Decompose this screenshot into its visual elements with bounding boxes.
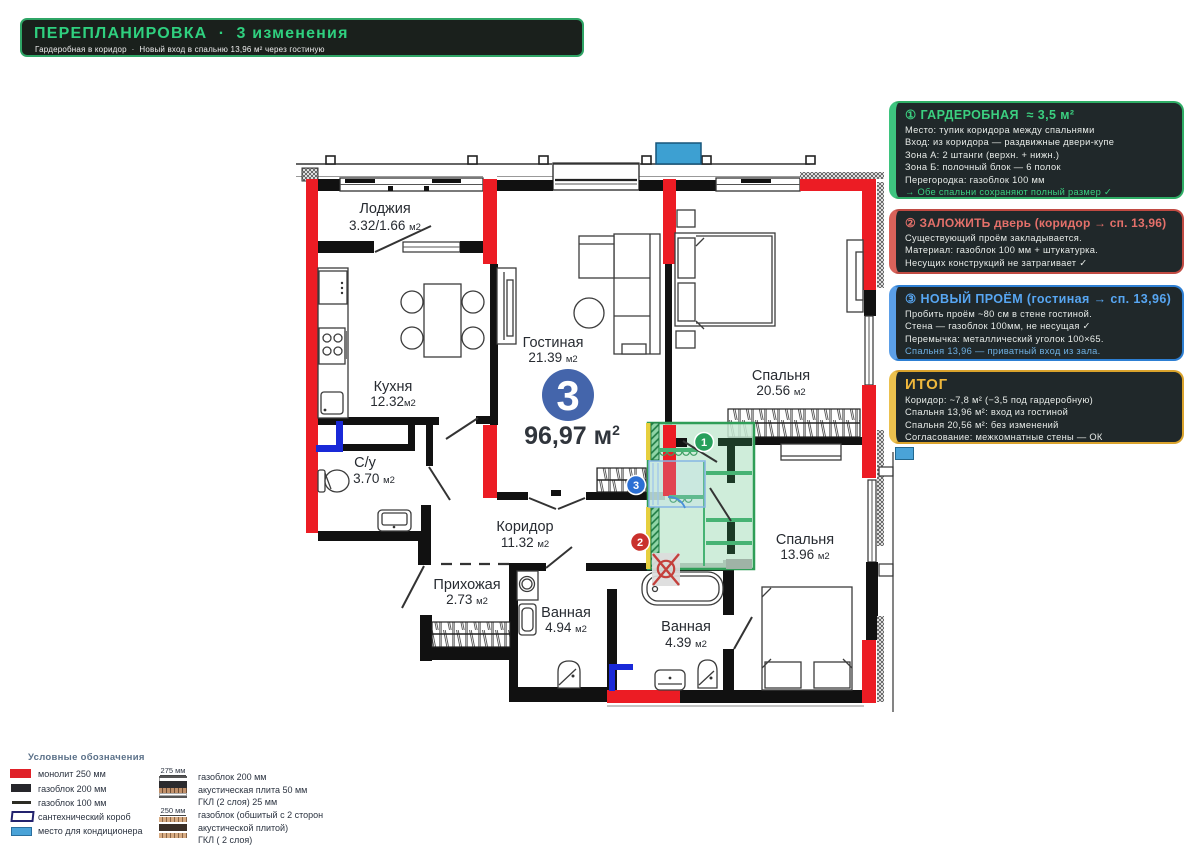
- svg-text:Прихожая: Прихожая: [433, 577, 500, 593]
- svg-text:3.32/1.66 м2: 3.32/1.66 м2: [349, 218, 421, 233]
- svg-text:Кухня: Кухня: [374, 379, 413, 395]
- svg-text:96,97 м2: 96,97 м2: [524, 422, 620, 450]
- svg-text:2.73 м2: 2.73 м2: [446, 592, 488, 607]
- svg-text:Спальня: Спальня: [776, 532, 834, 548]
- svg-text:21.39 м2: 21.39 м2: [528, 350, 577, 365]
- svg-text:1: 1: [701, 437, 707, 449]
- svg-text:Ванная: Ванная: [661, 619, 711, 635]
- svg-text:3: 3: [556, 372, 579, 419]
- svg-text:Коридор: Коридор: [496, 519, 553, 535]
- svg-text:4.94 м2: 4.94 м2: [545, 620, 587, 635]
- svg-text:20.56 м2: 20.56 м2: [756, 383, 805, 398]
- svg-text:Гостиная: Гостиная: [523, 335, 584, 351]
- svg-text:4.39 м2: 4.39 м2: [665, 635, 707, 650]
- svg-text:2: 2: [637, 537, 643, 549]
- svg-text:Спальня: Спальня: [752, 368, 810, 384]
- svg-text:13.96 м2: 13.96 м2: [780, 547, 829, 562]
- svg-text:3.70 м2: 3.70 м2: [353, 471, 395, 486]
- svg-text:Лоджия: Лоджия: [359, 201, 410, 217]
- svg-text:С/у: С/у: [354, 455, 377, 471]
- svg-text:Ванная: Ванная: [541, 605, 591, 621]
- svg-text:11.32 м2: 11.32 м2: [501, 535, 549, 550]
- svg-text:12.32м2: 12.32м2: [370, 394, 416, 409]
- svg-text:3: 3: [633, 480, 639, 492]
